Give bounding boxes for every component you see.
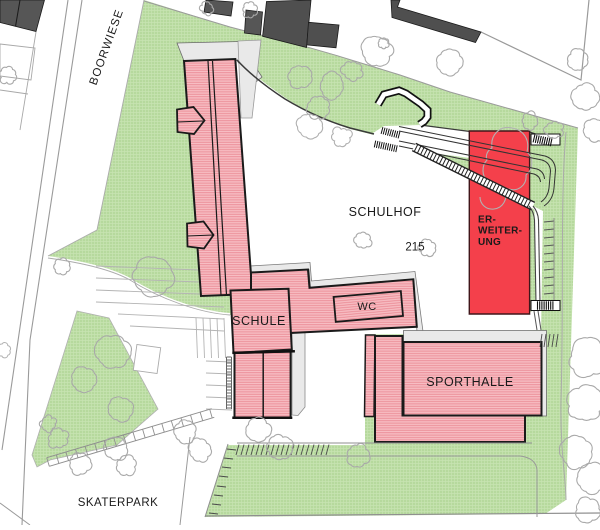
svg-text:WEITER-: WEITER- xyxy=(478,226,522,237)
svg-text:215: 215 xyxy=(405,242,424,254)
svg-text:SCHULE: SCHULE xyxy=(232,314,286,328)
svg-text:ER-: ER- xyxy=(478,215,496,226)
svg-text:UNG: UNG xyxy=(478,237,501,248)
svg-text:SKATERPARK: SKATERPARK xyxy=(78,497,159,509)
svg-text:SCHULHOF: SCHULHOF xyxy=(349,205,422,219)
svg-text:WC: WC xyxy=(357,301,376,313)
svg-text:SPORTHALLE: SPORTHALLE xyxy=(426,375,513,389)
